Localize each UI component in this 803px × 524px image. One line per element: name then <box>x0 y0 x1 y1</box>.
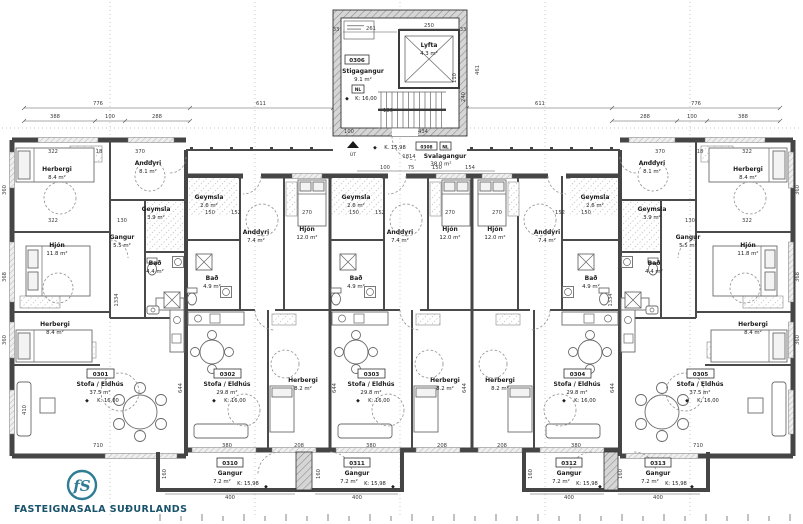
dim-stair-240: 240 <box>461 92 467 102</box>
dim-bottom: 208 <box>294 443 304 449</box>
room-name: Herbergi <box>430 377 460 384</box>
apartment-id: 0302 <box>220 372 236 378</box>
corridor-id: 0310 <box>222 461 238 467</box>
room-name: Bað <box>206 275 219 282</box>
kitchen-counter <box>332 312 388 325</box>
level-marker-icon: ◆ <box>212 398 216 404</box>
sink-icon <box>646 306 658 314</box>
single-bed <box>508 386 532 432</box>
apartment-level: K: 16,00 <box>97 398 119 404</box>
apartment-level: K: 16,00 <box>574 398 596 404</box>
room-area: 4.4 m² <box>146 268 164 275</box>
floor-plan-canvas: 776 611 611 776 388 100 288 288 100 388 <box>0 0 803 524</box>
room-area: 2.6 m² <box>586 202 604 209</box>
dim-bottom: 380 <box>366 443 376 449</box>
washer-icon <box>365 287 376 298</box>
corridor-id: 0311 <box>349 461 365 467</box>
dim-edge-left: 360 <box>2 185 8 195</box>
room-name: Hjón <box>487 226 502 233</box>
dim-stair-261: 261 <box>366 26 376 32</box>
dim-bottom: 208 <box>497 443 507 449</box>
level-marker-icon: ◆ <box>391 484 395 490</box>
dim-edge-left: 360 <box>2 335 8 345</box>
room-name: Anddyri <box>639 160 665 167</box>
toilet-icon <box>187 288 197 305</box>
corridor-id: 0313 <box>650 461 666 467</box>
apartment-id: 0301 <box>93 372 109 378</box>
dim-288-right: 288 <box>640 114 650 120</box>
double-bed <box>478 180 506 226</box>
dim-row: 322 <box>48 218 58 224</box>
apartment-level: K: 16,00 <box>368 398 390 404</box>
dim-388-left: 388 <box>50 114 60 120</box>
apartment-area: 29.8 m² <box>566 389 587 396</box>
room-area: 7.4 m² <box>538 237 556 244</box>
room-name: Bað <box>648 260 661 267</box>
stairwell-marker: NL <box>355 87 362 93</box>
shower-icon <box>578 254 594 270</box>
logo-monogram: fS <box>72 477 90 495</box>
room-name: Geymsla <box>581 194 610 201</box>
floor-plan-sheet: 776 611 611 776 388 100 288 288 100 388 <box>0 0 803 524</box>
room-area: 8.4 m² <box>46 329 64 336</box>
room-area: 5.5 m² <box>113 242 131 249</box>
room-name: Gangur <box>110 234 135 241</box>
dim-row: 130 <box>117 218 127 224</box>
stairwell-level-marker-icon: ◆ <box>345 96 349 102</box>
apartment-area: 29.8 m² <box>216 389 237 396</box>
room-name: Herbergi <box>485 377 515 384</box>
room-area: 11.8 m² <box>737 250 758 257</box>
corridor-name: Gangur <box>218 470 243 477</box>
room-area: 8.2 m² <box>294 385 312 392</box>
room-name: Geymsla <box>342 194 371 201</box>
level-marker-icon: ◆ <box>598 484 602 490</box>
corridor-id: 0312 <box>561 461 577 467</box>
room-area: 5.5 m² <box>679 242 697 249</box>
apartment-id: 0304 <box>570 372 586 378</box>
dim-vert: 644 <box>178 382 184 393</box>
corridor-name: Gangur <box>557 470 582 477</box>
room-name: Herbergi <box>288 377 318 384</box>
room-area: 11.8 m² <box>46 250 67 257</box>
room-area: 4.9 m² <box>582 283 600 290</box>
kitchen-counter <box>562 312 618 325</box>
shower-icon <box>196 254 212 270</box>
corridor-depth: 160 <box>528 469 534 479</box>
washer-icon <box>221 287 232 298</box>
room-area: 8.2 m² <box>491 385 509 392</box>
kitchen-counter <box>188 312 244 325</box>
dim-row: 370 <box>655 149 665 155</box>
room-name: Geymsla <box>142 206 171 213</box>
dim-row: 150 <box>349 210 359 216</box>
room-name: Hjón <box>49 242 64 249</box>
corridor-depth: 160 <box>162 469 168 479</box>
walkway-name: Svalagangur <box>424 153 467 160</box>
room-name: Bað <box>585 275 598 282</box>
corridor-width: 400 <box>225 495 235 501</box>
dim-vert: 644 <box>462 382 468 393</box>
dim-row: 18 <box>697 149 704 155</box>
room-name: Herbergi <box>738 321 768 328</box>
level-marker-icon: ◆ <box>373 145 377 151</box>
room-name: Gangur <box>676 234 701 241</box>
corridor-width: 400 <box>653 495 663 501</box>
level-marker-icon: ◆ <box>562 398 566 404</box>
dim-row: 152 <box>375 210 385 216</box>
brand-name: FASTEIGNASALA SUÐURLANDS <box>14 504 187 515</box>
dim-bottom: 380 <box>571 443 581 449</box>
corridor-level: K: 15,98 <box>665 481 687 487</box>
corridor-width: 400 <box>352 495 362 501</box>
dim-row: 370 <box>135 149 145 155</box>
dim-top-776-right: 776 <box>691 101 701 107</box>
room-area: 4.9 m² <box>203 283 221 290</box>
dim-100-right: 100 <box>687 114 697 120</box>
dim-row: 152 <box>231 210 241 216</box>
dim-row: 270 <box>302 210 312 216</box>
sofa <box>194 424 248 438</box>
apartment-name: Stofa / Eldhús <box>77 381 124 388</box>
room-name: Geymsla <box>195 194 224 201</box>
corridor-width: 400 <box>564 495 574 501</box>
room-name: Anddyri <box>387 229 413 236</box>
dim-row: 130 <box>685 218 695 224</box>
dim-388-right: 388 <box>738 114 748 120</box>
walkway-dim-150: 150 <box>432 165 442 171</box>
apartment-area: 29.8 m² <box>360 389 381 396</box>
dim-row: 322 <box>742 218 752 224</box>
single-bed <box>270 386 294 432</box>
washer-icon <box>563 287 574 298</box>
dim-row: 152 <box>555 210 565 216</box>
room-name: Bað <box>350 275 363 282</box>
dim-stair-434: 434 <box>418 129 429 135</box>
elevator-area: 4.3 m² <box>420 50 438 57</box>
shower-icon <box>340 254 356 270</box>
apartment-area: 37.5 m² <box>689 389 710 396</box>
room-area: 3.9 m² <box>643 214 661 221</box>
dim-288-left: 288 <box>152 114 162 120</box>
corridor-area: 7.2 m² <box>213 478 231 485</box>
room-area: 2.6 m² <box>347 202 365 209</box>
elevator-name: Lyfta <box>421 42 438 49</box>
dim-row: 322 <box>48 149 58 155</box>
room-name: Hjón <box>740 242 755 249</box>
room-name: Bað <box>149 260 162 267</box>
toilet-icon <box>331 288 341 305</box>
room-name: Herbergi <box>733 166 763 173</box>
level-marker-icon: ◆ <box>85 398 89 404</box>
stair-door-opening <box>392 128 418 136</box>
dim-bottom: 710 <box>93 443 103 449</box>
level-marker-icon: ◆ <box>690 484 694 490</box>
exit-label: ÚT <box>350 151 356 158</box>
corridor-depth: 160 <box>618 469 624 479</box>
corridor-name: Gangur <box>646 470 671 477</box>
apartment-level: K: 16,00 <box>224 398 246 404</box>
room-area: 7.4 m² <box>391 237 409 244</box>
corridor-level: K: 15,98 <box>364 481 386 487</box>
room-area: 8.4 m² <box>739 174 757 181</box>
room-name: Anddyri <box>135 160 161 167</box>
stairwell-name: Stigagangur <box>342 68 384 75</box>
walkway-id: 0308 <box>420 145 432 151</box>
dim-vert: 1334 <box>114 293 120 307</box>
double-bed <box>442 180 470 226</box>
dim-edge-left: 368 <box>2 272 8 282</box>
dim-row: 322 <box>742 149 752 155</box>
room-area: 7.4 m² <box>247 237 265 244</box>
dim-vert: 410 <box>22 405 28 415</box>
dim-top-776-left: 776 <box>93 101 103 107</box>
dim-stair-110: 110 <box>452 73 458 83</box>
dim-top-611-right: 611 <box>535 101 545 107</box>
room-name: Anddyri <box>534 229 560 236</box>
level-marker-icon: ◆ <box>685 398 689 404</box>
dim-edge-right: 368 <box>795 272 801 282</box>
dim-row: 270 <box>445 210 455 216</box>
dim-stair-33-right: 33 <box>460 27 467 33</box>
dim-edge-right: 360 <box>795 185 801 195</box>
room-area: 8.1 m² <box>139 168 157 175</box>
level-marker-icon: ◆ <box>264 484 268 490</box>
dim-row: 150 <box>205 210 215 216</box>
room-area: 8.4 m² <box>48 174 66 181</box>
dim-stair-250: 250 <box>424 23 434 29</box>
room-area: 2.6 m² <box>200 202 218 209</box>
washer-icon <box>173 257 184 268</box>
single-bed <box>414 386 438 432</box>
sink-icon <box>147 306 159 314</box>
sofa <box>546 424 600 438</box>
shower-icon <box>625 292 641 308</box>
walkway-level: K. 15,98 <box>384 145 406 151</box>
washer-icon <box>622 257 633 268</box>
room-name: Herbergi <box>40 321 70 328</box>
room-area: 12.0 m² <box>484 234 505 241</box>
elevator-shaft <box>399 30 459 88</box>
apartment-name: Stofa / Eldhús <box>554 381 601 388</box>
dim-stair-100: 100 <box>344 129 354 135</box>
dim-vert: 1334 <box>608 293 614 307</box>
dim-vert: 644 <box>610 382 616 393</box>
apartment-name: Stofa / Eldhús <box>348 381 395 388</box>
room-name: Herbergi <box>42 166 72 173</box>
dim-bottom: 208 <box>437 443 447 449</box>
dim-row: 150 <box>581 210 591 216</box>
corridor-area: 7.2 m² <box>340 478 358 485</box>
dim-top-611-left: 611 <box>256 101 266 107</box>
walkway-length: 1814 <box>402 154 416 160</box>
dim-stair-180: 180 <box>383 108 393 114</box>
room-area: 4.9 m² <box>347 283 365 290</box>
stairwell-level: K: 16,00 <box>355 96 377 102</box>
room-name: Anddyri <box>243 229 269 236</box>
apartment-name: Stofa / Eldhús <box>204 381 251 388</box>
room-area: 8.1 m² <box>643 168 661 175</box>
corridor-depth: 160 <box>316 469 322 479</box>
apartment-id: 0303 <box>364 372 380 378</box>
walkway-dim-100: 100 <box>380 165 390 171</box>
walkway-marker: NL <box>442 145 449 151</box>
corridor-name: Gangur <box>345 470 370 477</box>
apartment-name: Stofa / Eldhús <box>677 381 724 388</box>
room-area: 8.2 m² <box>436 385 454 392</box>
shower-icon <box>164 292 180 308</box>
dim-vert: 644 <box>332 382 338 393</box>
apartment-id: 0305 <box>693 372 709 378</box>
corridor-area: 7.2 m² <box>552 478 570 485</box>
walkway-dim-75: 75 <box>408 165 415 171</box>
dim-100-left: 100 <box>105 114 115 120</box>
corridor-area: 7.2 m² <box>641 478 659 485</box>
dim-row: 18 <box>96 149 103 155</box>
dim-stair-33-left: 33 <box>333 27 340 33</box>
room-area: 3.9 m² <box>147 214 165 221</box>
stairwell-id: 0306 <box>349 58 365 64</box>
corridor-level: K: 15,98 <box>576 481 598 487</box>
dim-edge-right: 360 <box>795 335 801 345</box>
sofa <box>338 424 392 438</box>
double-bed <box>298 180 326 226</box>
dim-bottom: 380 <box>222 443 232 449</box>
room-area: 8.4 m² <box>744 329 762 336</box>
apartment-level: K: 16,00 <box>697 398 719 404</box>
room-name: Geymsla <box>638 206 667 213</box>
walkway-dim-154: 154 <box>465 165 476 171</box>
corridor-level: K: 15,98 <box>237 481 259 487</box>
apartment-area: 37.5 m² <box>89 389 110 396</box>
room-name: Hjón <box>442 226 457 233</box>
dim-bottom: 710 <box>693 443 703 449</box>
room-area: 12.0 m² <box>439 234 460 241</box>
room-area: 12.0 m² <box>296 234 317 241</box>
dim-stair-461: 461 <box>475 65 481 75</box>
stairwell-area: 9.1 m² <box>354 76 372 83</box>
room-area: 4.4 m² <box>645 268 663 275</box>
stairwell-block: 0306 Stigagangur 9.1 m² NL ◆ K: 16,00 Ly… <box>333 10 481 136</box>
level-marker-icon: ◆ <box>356 398 360 404</box>
room-name: Hjón <box>299 226 314 233</box>
dim-row: 270 <box>492 210 502 216</box>
